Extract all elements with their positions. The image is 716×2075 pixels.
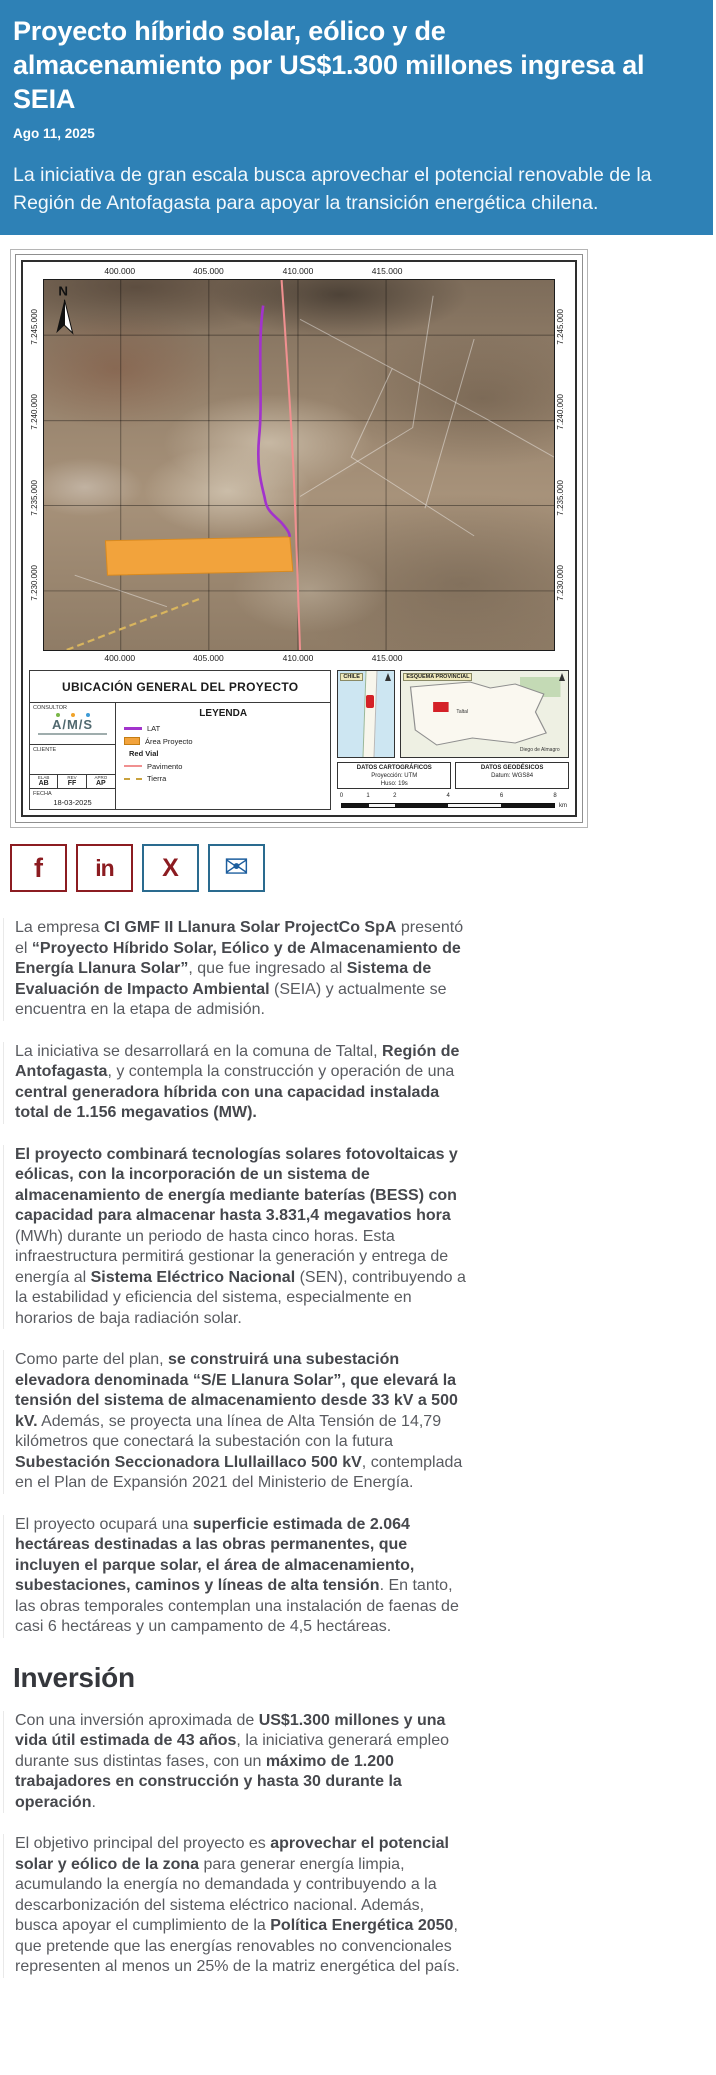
place-label: Taltal [456, 709, 468, 715]
map-x-axis-bottom: 400.000 405.000 410.000 415.000 [43, 651, 555, 665]
share-email-button[interactable]: ✉ [208, 844, 265, 892]
legend-item-pavimento: Pavimento [124, 762, 322, 771]
project-location-map-figure: 400.000 405.000 410.000 415.000 7.245.00… [10, 249, 588, 828]
legend-item-tierra: Tierra [124, 774, 322, 783]
consultor-cell: CONSULTOR A/M/S [30, 703, 115, 745]
fecha-value: 18-03-2025 [33, 798, 112, 807]
approval-table: ELAB REV APRO AB FF AP [30, 775, 115, 789]
ams-logo-text: A/M/S [33, 718, 112, 731]
x-icon: X [162, 854, 179, 883]
chile-inset-map: CHILE [337, 670, 395, 758]
map-overlay: N [44, 280, 554, 650]
satellite-map: N [43, 279, 555, 651]
north-arrow: N [56, 284, 72, 333]
map-title: UBICACIÓN GENERAL DEL PROYECTO [30, 671, 330, 703]
approval-value: AB [30, 780, 58, 788]
fecha-label: FECHA [33, 791, 112, 797]
map-sheet: 400.000 405.000 410.000 415.000 7.245.00… [15, 254, 583, 823]
chile-inset-label: CHILE [340, 673, 363, 681]
paragraph: Con una inversión aproximada de US$1.300… [3, 1711, 468, 1814]
project-area-swatch [124, 737, 140, 745]
legend-item-area: Área Proyecto [124, 737, 322, 746]
share-facebook-button[interactable]: f [10, 844, 67, 892]
y-tick-label: 7.240.000 [30, 394, 39, 430]
y-tick-label: 7.230.000 [30, 565, 39, 601]
y-tick-label: 7.245.000 [30, 309, 39, 345]
map-frame: 400.000 405.000 410.000 415.000 7.245.00… [21, 260, 577, 817]
consultor-label: CONSULTOR [33, 705, 112, 711]
article-body: La empresa CI GMF II Llanura Solar Proje… [3, 918, 481, 1978]
x-tick-label: 410.000 [283, 266, 314, 276]
cliente-cell: CLIENTE [30, 745, 115, 775]
dirt-road-swatch [124, 778, 142, 780]
legend-item-lat: LAT [124, 724, 322, 733]
north-arrow-icon [385, 673, 391, 681]
fecha-cell: FECHA 18-03-2025 [30, 789, 115, 809]
map-scale-bar: 0 1 2 4 6 8 km [341, 793, 555, 810]
approval-value: FF [58, 780, 86, 788]
map-title-block: UBICACIÓN GENERAL DEL PROYECTO CONSULTOR [29, 670, 331, 810]
dirt-road-line [56, 599, 199, 650]
map-y-axis-right: 7.245.000 7.240.000 7.235.000 7.230.000 [555, 279, 569, 651]
project-location-marker [434, 702, 449, 712]
region-highlight-marker [366, 695, 374, 708]
ams-logo: A/M/S [33, 713, 112, 735]
x-tick-label: 400.000 [104, 266, 135, 276]
map-inset-block: CHILE ESQUEMA PROVINCIAL [337, 670, 569, 810]
paragraph: La empresa CI GMF II Llanura Solar Proje… [3, 918, 468, 1021]
esquema-provincial-inset: ESQUEMA PROVINCIAL Taltal Diego de Almag… [400, 670, 569, 758]
logo-tagline-strip [38, 733, 107, 735]
paved-road-swatch [124, 765, 142, 767]
share-x-button[interactable]: X [142, 844, 199, 892]
y-tick-label: 7.245.000 [556, 309, 565, 345]
x-tick-label: 415.000 [372, 653, 403, 663]
map-x-axis-top: 400.000 405.000 410.000 415.000 [43, 265, 555, 279]
x-tick-label: 400.000 [104, 653, 135, 663]
y-tick-label: 7.230.000 [556, 565, 565, 601]
paragraph: El objetivo principal del proyecto es ap… [3, 1834, 468, 1978]
project-area-polygon [105, 537, 292, 575]
share-linkedin-button[interactable]: in [76, 844, 133, 892]
section-heading-inversion: Inversión [3, 1662, 481, 1694]
scale-unit: km [559, 803, 567, 809]
publish-date: Ago 11, 2025 [13, 126, 697, 141]
paragraph: El proyecto ocupará una superficie estim… [3, 1515, 468, 1638]
province-outline [401, 671, 568, 757]
map-y-axis-left: 7.245.000 7.240.000 7.235.000 7.230.000 [29, 279, 43, 651]
page-title: Proyecto híbrido solar, eólico y de alma… [13, 14, 648, 116]
north-arrow-icon [559, 673, 565, 681]
article-header: Proyecto híbrido solar, eólico y de alma… [0, 0, 713, 235]
map-info-panel: UBICACIÓN GENERAL DEL PROYECTO CONSULTOR [29, 670, 569, 810]
x-tick-label: 405.000 [193, 653, 224, 663]
cliente-label: CLIENTE [33, 747, 112, 753]
y-tick-label: 7.240.000 [556, 394, 565, 430]
place-label: Diego de Almagro [520, 747, 560, 753]
map-legend: LEYENDA LAT Área Proyecto [116, 703, 330, 809]
legend-item-red-vial: Red Vial [124, 749, 322, 758]
paved-road-line [282, 280, 300, 650]
y-tick-label: 7.235.000 [30, 480, 39, 516]
x-tick-label: 410.000 [283, 653, 314, 663]
linkedin-icon: in [95, 855, 113, 882]
share-buttons-row: f in X ✉ [10, 844, 716, 892]
legend-heading: LEYENDA [124, 708, 322, 719]
x-tick-label: 415.000 [372, 266, 403, 276]
paragraph: La iniciativa se desarrollará en la comu… [3, 1042, 468, 1124]
paragraph: El proyecto combinará tecnologías solare… [3, 1145, 468, 1330]
approval-value: AP [87, 780, 115, 788]
svg-text:N: N [58, 284, 68, 299]
article-subtitle: La iniciativa de gran escala busca aprov… [13, 161, 689, 217]
email-icon: ✉ [224, 853, 249, 883]
chile-landmass [363, 670, 378, 758]
datos-cartograficos-box: DATOS CARTOGRÁFICOS Proyección: UTM Huso… [337, 762, 451, 789]
esquema-inset-label: ESQUEMA PROVINCIAL [403, 673, 472, 681]
x-tick-label: 405.000 [193, 266, 224, 276]
lat-line-swatch [124, 727, 142, 730]
datos-geodesicos-box: DATOS GEODÉSICOS Datum: WGS84 [455, 762, 569, 789]
paragraph: Como parte del plan, se construirá una s… [3, 1350, 468, 1494]
y-tick-label: 7.235.000 [556, 480, 565, 516]
facebook-icon: f [34, 853, 43, 884]
